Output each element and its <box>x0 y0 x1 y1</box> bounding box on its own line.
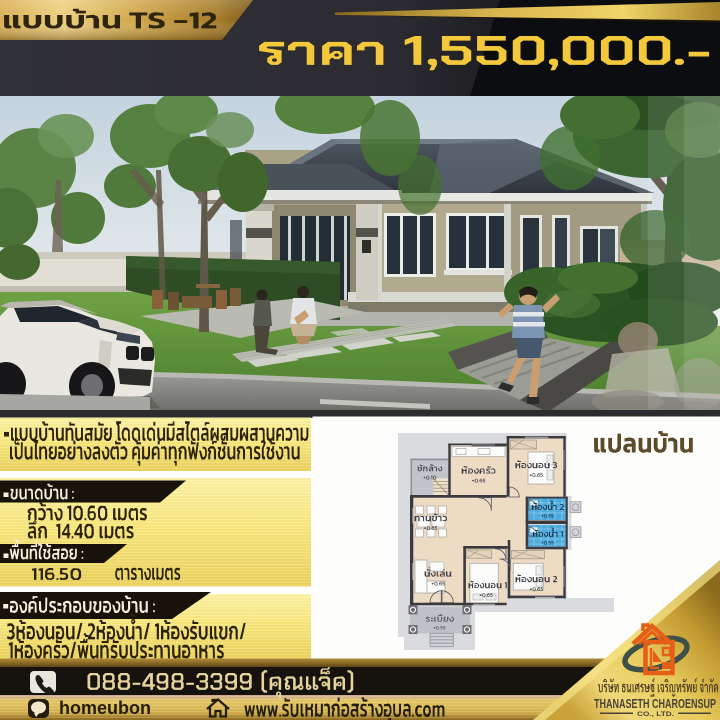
svg-text:homeubon: homeubon <box>59 697 151 718</box>
svg-text:THANASETH CHAROENSUP: THANASETH CHAROENSUP <box>594 697 716 711</box>
svg-text:CO., LTD.: CO., LTD. <box>637 712 674 718</box>
